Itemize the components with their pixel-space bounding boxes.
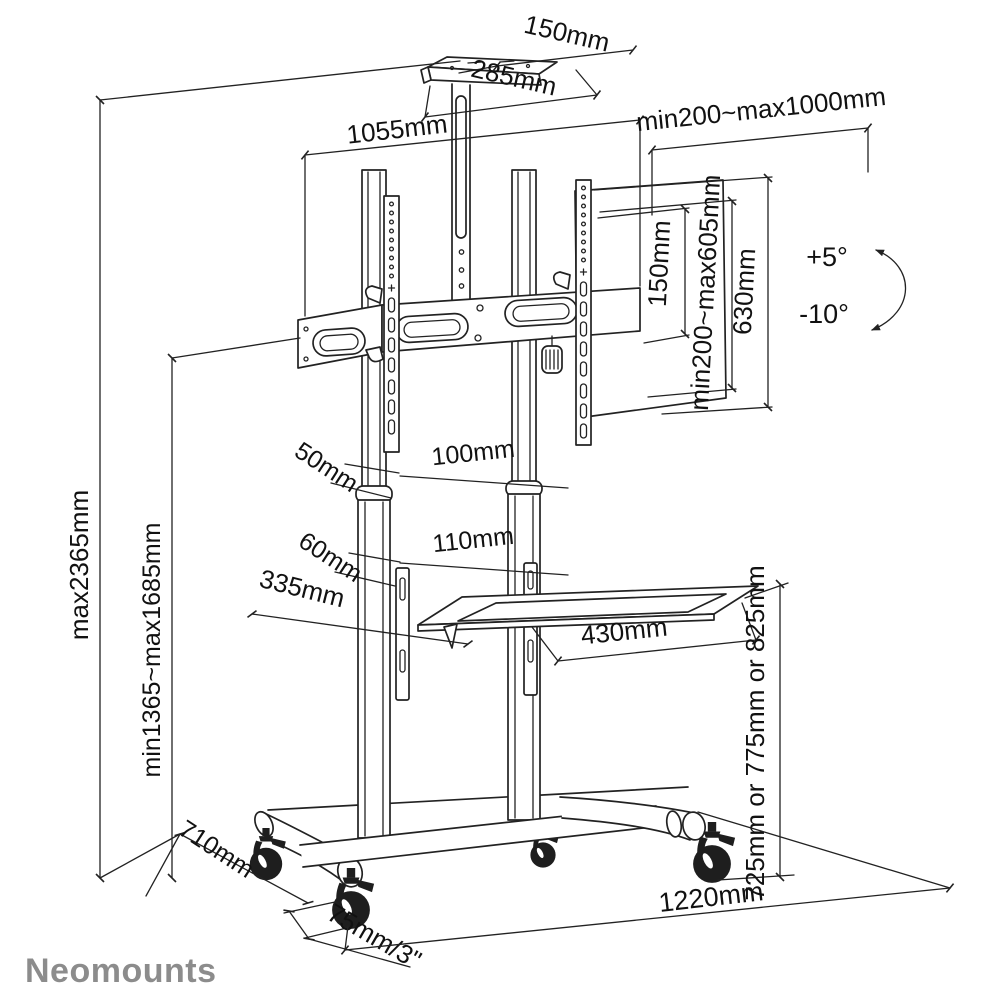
dim-screen-center-height: min1365~max1685mm [138, 338, 300, 878]
dim-label-caster-diameter: 75mm/3" [322, 897, 426, 975]
right-vesa-rail [576, 180, 591, 445]
dim-caster-diameter: 75mm/3" [284, 897, 427, 975]
shelf-bracket-fin [444, 624, 457, 648]
tilt-down-label: -10° [799, 299, 849, 329]
technical-drawing-page: max2365mm min1365~max1685mm 1055mm min20… [0, 0, 1004, 1004]
right-shelf-strap [524, 563, 537, 695]
dim-shelf-heights: 725mm or 775mm or 825mm [718, 565, 794, 900]
strut-slot [456, 96, 466, 238]
base [251, 797, 707, 890]
dim-label-crossbar-width: 1055mm [345, 108, 449, 149]
dim-label-screen-center-height: min1365~max1685mm [138, 523, 166, 778]
brand-logo: Neomounts [25, 952, 217, 990]
dim-label-lower-clamp-width: 110mm [431, 522, 515, 558]
adjuster-knob [542, 346, 562, 373]
rail-claw-top-right [554, 272, 570, 289]
tilt-arc-arrow [872, 250, 906, 330]
tilt-range-annotation: +5° -10° [799, 242, 905, 330]
dim-total-height: max2365mm [64, 61, 460, 878]
dim-label-bracket-top-offset: 150mm [642, 219, 676, 307]
dim-label-bracket-height: 630mm [727, 247, 761, 335]
dim-label-upper-clamp-depth: 50mm [290, 437, 364, 498]
dim-label-vesa-height-range: min200~max605mm [684, 174, 726, 412]
dim-label-base-width: 1220mm [657, 876, 765, 918]
dim-label-total-height: max2365mm [64, 490, 94, 640]
tilt-up-label: +5° [806, 242, 848, 272]
tv-floor-stand-dimensional-drawing: max2365mm min1365~max1685mm 1055mm min20… [0, 0, 1004, 1004]
left-column-lower [358, 500, 390, 838]
dim-label-base-depth: 710mm [174, 815, 259, 884]
dim-vesa-width-range: min200~max1000mm [635, 81, 887, 215]
dim-label-top-shelf-depth: 150mm [521, 9, 612, 58]
dim-label-vesa-width-range: min200~max1000mm [635, 81, 887, 137]
top-shelf-strut [452, 84, 470, 334]
dim-label-upper-clamp-width: 100mm [430, 435, 516, 472]
dim-label-shelf-heights: 725mm or 775mm or 825mm [740, 565, 770, 900]
